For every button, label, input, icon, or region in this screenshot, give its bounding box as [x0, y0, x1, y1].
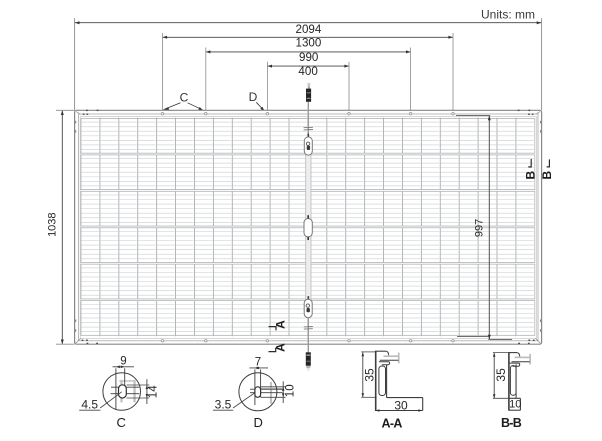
svg-text:1038: 1038	[47, 212, 59, 236]
svg-text:D: D	[254, 415, 263, 430]
svg-text:30: 30	[394, 398, 408, 412]
svg-text:D: D	[249, 90, 258, 104]
svg-text:35: 35	[494, 368, 508, 382]
svg-text:1300: 1300	[296, 37, 322, 50]
svg-text:997: 997	[473, 219, 485, 237]
svg-text:B: B	[524, 171, 538, 180]
svg-text:990: 990	[299, 51, 318, 64]
svg-text:3.5: 3.5	[215, 397, 232, 411]
svg-text:10: 10	[509, 399, 521, 411]
svg-text:B: B	[540, 171, 554, 180]
svg-text:A-A: A-A	[382, 416, 403, 430]
svg-text:B-B: B-B	[501, 416, 522, 430]
svg-text:9: 9	[120, 355, 126, 367]
svg-text:4.5: 4.5	[81, 397, 98, 411]
svg-text:C: C	[180, 91, 189, 105]
svg-text:2094: 2094	[296, 23, 322, 36]
svg-text:A: A	[273, 320, 287, 329]
svg-text:7: 7	[255, 356, 261, 368]
svg-text:400: 400	[298, 65, 317, 78]
svg-text:14: 14	[148, 385, 160, 398]
svg-text:10: 10	[285, 384, 297, 397]
svg-text:35: 35	[363, 368, 377, 382]
svg-text:Units: mm: Units: mm	[481, 8, 535, 22]
svg-text:A: A	[273, 343, 287, 352]
svg-text:C: C	[117, 415, 126, 430]
